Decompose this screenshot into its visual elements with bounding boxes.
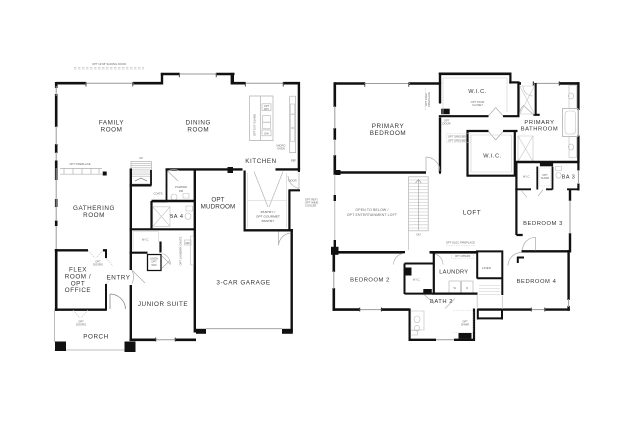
svg-text:BEDROOM 4: BEDROOM 4 <box>517 279 557 285</box>
svg-text:OPT 12'X8' SLIDING DOOR: OPT 12'X8' SLIDING DOOR <box>92 62 126 66</box>
svg-text:CLOSET: CLOSET <box>472 103 483 107</box>
svg-text:KITCHEN: KITCHEN <box>245 158 277 165</box>
svg-text:DOOR: DOOR <box>442 122 450 126</box>
svg-text:W.I.C.: W.I.C. <box>483 154 502 160</box>
svg-text:OPT ELEC FIREPLACE: OPT ELEC FIREPLACE <box>446 241 475 245</box>
svg-text:DOORS: DOORS <box>76 323 86 327</box>
svg-text:W/D: W/D <box>151 263 156 267</box>
svg-text:JUNIOR SUITE: JUNIOR SUITE <box>138 301 188 308</box>
svg-text:W/C: W/C <box>264 107 269 111</box>
svg-text:OPT FIREPLACE: OPT FIREPLACE <box>69 162 90 166</box>
svg-text:MUDROOM: MUDROOM <box>201 203 236 210</box>
svg-text:W.I.C.: W.I.C. <box>142 238 150 242</box>
svg-text:OPT EXT ISLAND: OPT EXT ISLAND <box>253 114 257 136</box>
svg-text:ROOM: ROOM <box>83 212 105 219</box>
svg-text:COATS: COATS <box>153 192 162 196</box>
svg-text:W.I.C.: W.I.C. <box>413 278 421 282</box>
svg-text:SHWR: SHWR <box>461 323 469 327</box>
svg-text:REF: REF <box>185 243 190 245</box>
svg-text:LAUNDRY: LAUNDRY <box>439 269 468 275</box>
svg-text:OPT UPPERS: OPT UPPERS <box>455 255 471 258</box>
svg-text:FIREPLACE: FIREPLACE <box>427 92 431 107</box>
svg-text:D: D <box>466 286 468 290</box>
svg-text:PRIMARY: PRIMARY <box>524 120 554 126</box>
svg-text:BEDROOM: BEDROOM <box>370 130 406 137</box>
svg-text:GATHERING: GATHERING <box>73 205 115 212</box>
svg-text:BEDROOM 3: BEDROOM 3 <box>523 221 563 227</box>
svg-text:REF: REF <box>291 158 297 162</box>
svg-text:BA 4: BA 4 <box>169 214 183 220</box>
svg-text:ENTRY: ENTRY <box>107 275 131 282</box>
svg-text:3-CAR GARAGE: 3-CAR GARAGE <box>216 280 270 287</box>
svg-text:OPT LAUNDRY CHUTE: OPT LAUNDRY CHUTE <box>179 236 183 265</box>
svg-text:FAMILY: FAMILY <box>99 119 124 126</box>
svg-text:LOFT: LOFT <box>463 210 481 217</box>
svg-text:OPEN TO BELOW /: OPEN TO BELOW / <box>355 208 388 212</box>
svg-text:LINEN: LINEN <box>482 266 491 270</box>
svg-text:COOLER: COOLER <box>305 204 316 208</box>
svg-text:DW: DW <box>264 131 269 135</box>
svg-text:UP: UP <box>139 156 143 160</box>
svg-text:OPT ENTERTAINMENT LOFT: OPT ENTERTAINMENT LOFT <box>347 213 397 217</box>
svg-text:DOOR: DOOR <box>288 179 296 183</box>
svg-text:PANTRY /: PANTRY / <box>261 210 276 214</box>
svg-text:OPT ELEC: OPT ELEC <box>424 93 428 106</box>
svg-text:OFFICE: OFFICE <box>65 287 91 294</box>
svg-text:DINING: DINING <box>186 119 211 126</box>
svg-text:ROOM: ROOM <box>101 126 123 133</box>
svg-text:BATHROOM: BATHROOM <box>521 127 558 133</box>
svg-text:PANTRY: PANTRY <box>262 219 275 223</box>
svg-text:W.I.C.: W.I.C. <box>523 175 531 179</box>
svg-text:OPT: OPT <box>211 196 224 203</box>
svg-text:DN: DN <box>417 233 421 237</box>
svg-text:BA 3: BA 3 <box>562 175 576 181</box>
svg-text:DOORS: DOORS <box>93 263 103 267</box>
svg-text:OPT DRESSER: OPT DRESSER <box>448 138 467 142</box>
svg-text:OPT GOURMET: OPT GOURMET <box>256 215 280 219</box>
svg-text:OPT DRESSER: OPT DRESSER <box>448 134 467 138</box>
svg-text:ROOM: ROOM <box>187 126 209 133</box>
svg-text:W.I.C.: W.I.C. <box>468 89 487 95</box>
svg-text:PORCH: PORCH <box>83 334 109 341</box>
svg-text:BEDROOM 2: BEDROOM 2 <box>350 278 390 284</box>
svg-text:POWDER: POWDER <box>175 185 187 189</box>
svg-text:PRIMARY: PRIMARY <box>372 123 405 130</box>
svg-text:SHWR: SHWR <box>541 176 549 180</box>
svg-text:OVEN: OVEN <box>277 147 285 151</box>
